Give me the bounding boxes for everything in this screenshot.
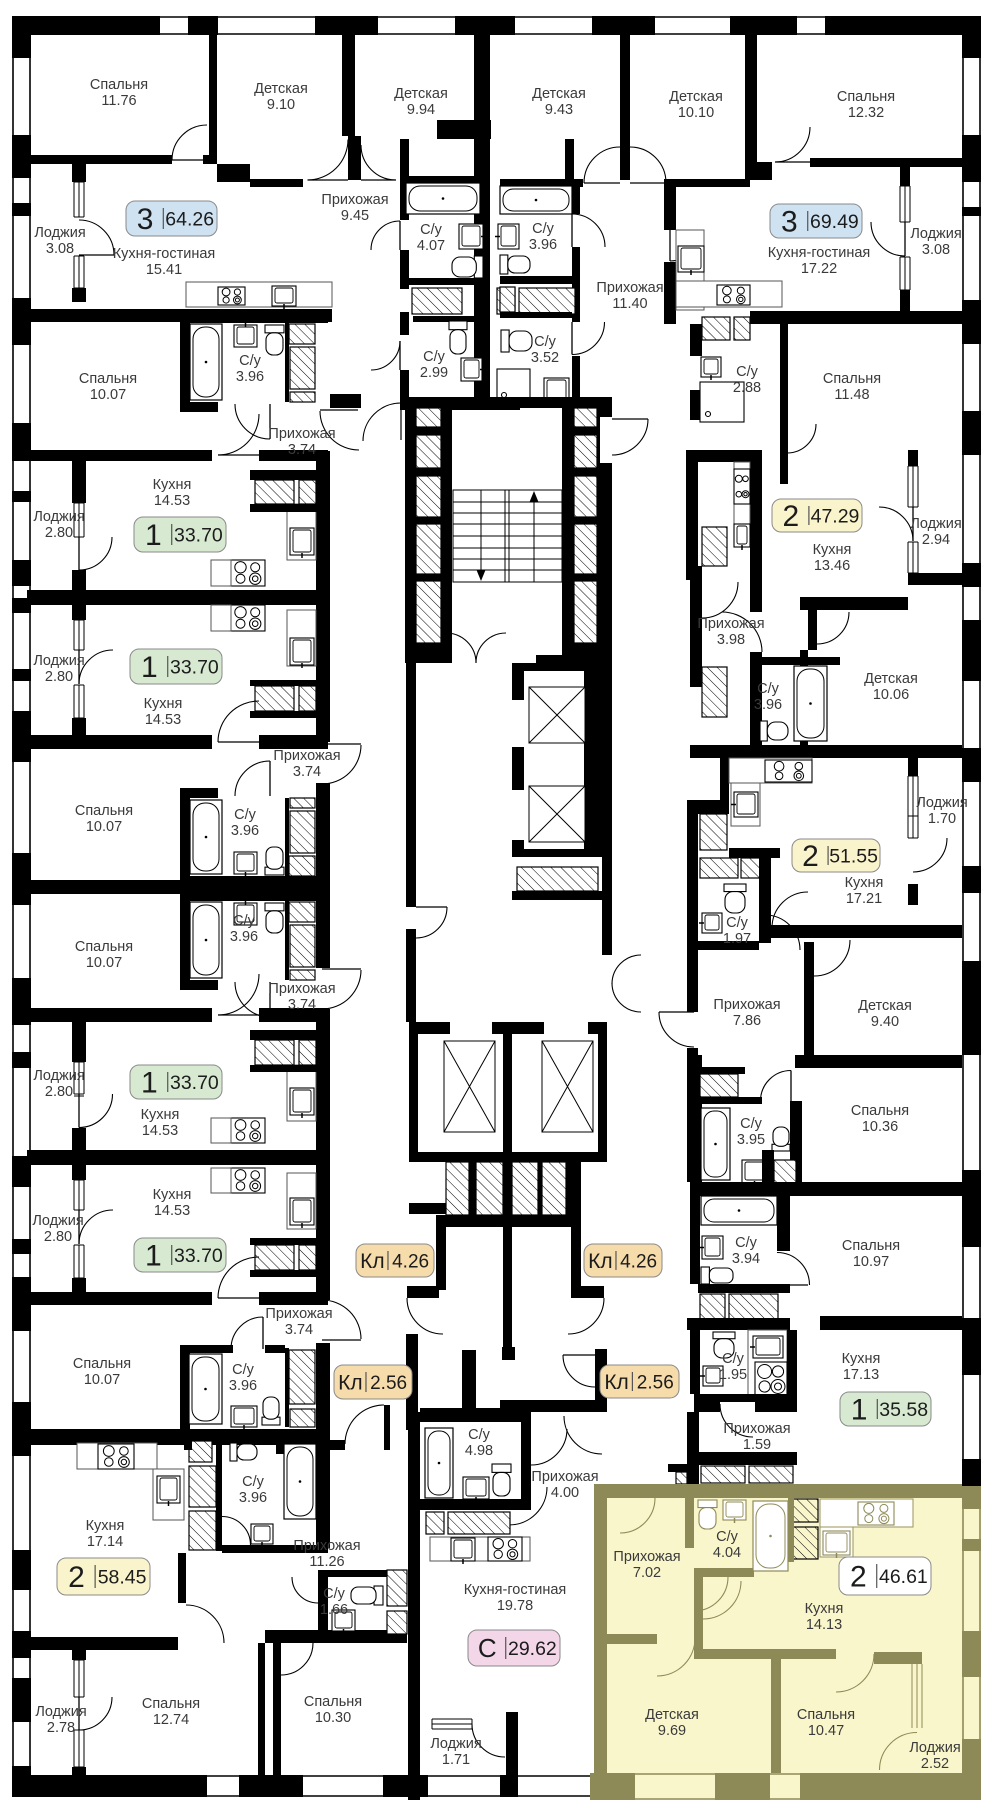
- svg-text:14.53: 14.53: [142, 1123, 178, 1139]
- svg-text:10.07: 10.07: [84, 1372, 120, 1388]
- svg-text:4.26: 4.26: [392, 1251, 429, 1272]
- svg-text:1: 1: [145, 519, 162, 552]
- svg-text:3.08: 3.08: [46, 241, 74, 257]
- svg-text:14.53: 14.53: [154, 1203, 190, 1219]
- svg-text:С/у: С/у: [239, 353, 262, 369]
- svg-text:1: 1: [141, 651, 158, 684]
- svg-text:17.21: 17.21: [846, 891, 882, 907]
- svg-text:3.96: 3.96: [239, 1490, 267, 1506]
- svg-text:Детская: Детская: [858, 998, 912, 1014]
- svg-text:3.96: 3.96: [229, 1378, 257, 1394]
- svg-text:Лоджия: Лоджия: [430, 1736, 481, 1752]
- svg-text:2: 2: [850, 1561, 867, 1594]
- svg-text:Прихожая: Прихожая: [713, 997, 780, 1013]
- svg-text:12.32: 12.32: [848, 105, 884, 121]
- svg-text:Кухня: Кухня: [805, 1601, 844, 1617]
- svg-text:33.70: 33.70: [170, 1072, 219, 1094]
- svg-text:1.59: 1.59: [743, 1437, 771, 1453]
- svg-text:11.76: 11.76: [101, 93, 136, 109]
- svg-text:4.07: 4.07: [417, 238, 445, 254]
- svg-text:10.07: 10.07: [86, 955, 122, 971]
- svg-text:Лоджия: Лоджия: [910, 226, 961, 242]
- svg-text:С/у: С/у: [757, 681, 780, 697]
- svg-text:3.96: 3.96: [230, 929, 258, 945]
- svg-text:3.96: 3.96: [529, 237, 557, 253]
- svg-text:1: 1: [851, 1394, 868, 1427]
- svg-text:1: 1: [145, 1240, 162, 1273]
- svg-text:2.80: 2.80: [45, 1084, 73, 1100]
- svg-text:С/у: С/у: [740, 1116, 763, 1132]
- svg-text:14.53: 14.53: [145, 712, 181, 728]
- svg-text:С/у: С/у: [233, 913, 256, 929]
- svg-text:Спальня: Спальня: [73, 1356, 131, 1372]
- svg-text:Лоджия: Лоджия: [916, 795, 967, 811]
- svg-text:С/у: С/у: [242, 1474, 265, 1490]
- svg-text:С/у: С/у: [735, 1235, 758, 1251]
- svg-text:3.74: 3.74: [288, 997, 316, 1013]
- svg-text:Кухня: Кухня: [153, 1187, 192, 1203]
- svg-text:Прихожая: Прихожая: [697, 616, 764, 632]
- svg-text:3.96: 3.96: [231, 823, 259, 839]
- svg-text:10.07: 10.07: [90, 387, 126, 403]
- svg-text:14.13: 14.13: [806, 1617, 842, 1633]
- svg-text:Кухня: Кухня: [842, 1351, 881, 1367]
- svg-text:С/у: С/у: [736, 364, 759, 380]
- svg-text:29.62: 29.62: [508, 1638, 557, 1660]
- svg-text:17.13: 17.13: [843, 1367, 879, 1383]
- svg-text:10.97: 10.97: [853, 1254, 889, 1270]
- svg-text:69.49: 69.49: [810, 211, 859, 233]
- svg-text:10.10: 10.10: [678, 105, 714, 121]
- svg-text:7.86: 7.86: [733, 1013, 761, 1029]
- svg-text:Прихожая: Прихожая: [293, 1538, 360, 1554]
- svg-text:3.94: 3.94: [732, 1251, 760, 1267]
- svg-text:Кухня: Кухня: [153, 477, 192, 493]
- svg-text:10.36: 10.36: [862, 1119, 898, 1135]
- svg-text:11.40: 11.40: [612, 296, 647, 312]
- svg-text:Прихожая: Прихожая: [265, 1306, 332, 1322]
- svg-text:3.52: 3.52: [531, 350, 559, 366]
- svg-text:1.97: 1.97: [723, 931, 751, 947]
- svg-text:2.80: 2.80: [45, 525, 73, 541]
- svg-text:4.00: 4.00: [551, 1485, 579, 1501]
- svg-text:Прихожая: Прихожая: [321, 192, 388, 208]
- svg-text:12.74: 12.74: [153, 1712, 189, 1728]
- svg-text:33.70: 33.70: [174, 525, 223, 547]
- svg-text:10.47: 10.47: [808, 1723, 844, 1739]
- svg-text:Спальня: Спальня: [75, 803, 133, 819]
- svg-text:9.94: 9.94: [407, 102, 435, 118]
- svg-text:3.98: 3.98: [717, 632, 745, 648]
- svg-text:Кухня-гостиная: Кухня-гостиная: [768, 245, 871, 261]
- svg-text:3.95: 3.95: [737, 1132, 765, 1148]
- svg-text:3.08: 3.08: [922, 242, 950, 258]
- svg-text:2.80: 2.80: [44, 1229, 72, 1245]
- svg-text:33.70: 33.70: [174, 1245, 223, 1267]
- svg-text:С/у: С/у: [722, 1351, 745, 1367]
- svg-text:13.46: 13.46: [814, 558, 850, 574]
- svg-text:1.70: 1.70: [928, 811, 956, 827]
- svg-text:2.78: 2.78: [47, 1720, 75, 1736]
- svg-text:2.52: 2.52: [921, 1756, 949, 1772]
- svg-text:11.26: 11.26: [309, 1554, 344, 1570]
- svg-text:Кл: Кл: [360, 1250, 385, 1273]
- svg-text:Детская: Детская: [254, 81, 308, 97]
- svg-text:Лоджия: Лоджия: [33, 1068, 84, 1084]
- svg-text:Кухня-гостиная: Кухня-гостиная: [113, 246, 216, 262]
- svg-text:7.02: 7.02: [633, 1565, 661, 1581]
- svg-text:2.94: 2.94: [922, 532, 950, 548]
- svg-text:Лоджия: Лоджия: [909, 1740, 960, 1756]
- svg-text:С/у: С/у: [232, 1362, 255, 1378]
- svg-text:Спальня: Спальня: [842, 1238, 900, 1254]
- svg-text:Прихожая: Прихожая: [268, 981, 335, 997]
- svg-text:1.71: 1.71: [442, 1752, 470, 1768]
- svg-text:Кухня: Кухня: [813, 542, 852, 558]
- svg-text:Лоджия: Лоджия: [33, 509, 84, 525]
- svg-text:С/у: С/у: [423, 349, 446, 365]
- svg-text:Детская: Детская: [669, 89, 723, 105]
- svg-text:Прихожая: Прихожая: [723, 1421, 790, 1437]
- svg-text:46.61: 46.61: [879, 1566, 928, 1588]
- svg-text:17.22: 17.22: [801, 261, 837, 277]
- svg-text:2.80: 2.80: [45, 669, 73, 685]
- svg-text:2.99: 2.99: [420, 365, 448, 381]
- svg-text:Прихожая: Прихожая: [268, 426, 335, 442]
- svg-text:Детская: Детская: [532, 86, 586, 102]
- svg-text:Кухня: Кухня: [845, 875, 884, 891]
- svg-text:2.56: 2.56: [637, 1372, 674, 1393]
- svg-text:Спальня: Спальня: [75, 939, 133, 955]
- svg-text:С/у: С/у: [726, 915, 749, 931]
- svg-text:9.43: 9.43: [545, 102, 573, 118]
- svg-text:3: 3: [137, 203, 154, 236]
- svg-text:С/у: С/у: [532, 221, 555, 237]
- svg-text:4.04: 4.04: [713, 1545, 741, 1561]
- svg-text:Кл: Кл: [588, 1250, 613, 1273]
- svg-text:3.74: 3.74: [285, 1322, 313, 1338]
- svg-text:Спальня: Спальня: [90, 77, 148, 93]
- svg-text:Прихожая: Прихожая: [531, 1469, 598, 1485]
- svg-text:33.70: 33.70: [170, 657, 219, 679]
- svg-text:С/у: С/у: [234, 807, 257, 823]
- svg-text:Прихожая: Прихожая: [273, 748, 340, 764]
- svg-text:1: 1: [141, 1067, 158, 1100]
- svg-text:9.10: 9.10: [267, 97, 295, 113]
- svg-text:Детская: Детская: [864, 671, 918, 687]
- svg-text:Лоджия: Лоджия: [910, 516, 961, 532]
- svg-text:9.45: 9.45: [341, 208, 369, 224]
- svg-text:3.96: 3.96: [236, 369, 264, 385]
- svg-text:10.06: 10.06: [873, 687, 909, 703]
- svg-text:58.45: 58.45: [98, 1567, 147, 1589]
- svg-text:Кухня-гостиная: Кухня-гостиная: [464, 1582, 567, 1598]
- svg-text:Кухня: Кухня: [144, 696, 183, 712]
- svg-text:Спальня: Спальня: [79, 371, 137, 387]
- svg-text:С/у: С/у: [420, 222, 443, 238]
- svg-text:2: 2: [783, 500, 800, 533]
- svg-text:64.26: 64.26: [165, 209, 214, 231]
- svg-text:47.29: 47.29: [811, 506, 860, 528]
- svg-text:2: 2: [68, 1561, 85, 1594]
- svg-text:Детская: Детская: [394, 86, 448, 102]
- svg-text:1.95: 1.95: [719, 1367, 747, 1383]
- svg-text:3.74: 3.74: [288, 442, 316, 458]
- svg-text:С/у: С/у: [716, 1529, 739, 1545]
- svg-text:Спальня: Спальня: [837, 89, 895, 105]
- svg-text:Спальня: Спальня: [797, 1707, 855, 1723]
- svg-text:Кухня: Кухня: [141, 1107, 180, 1123]
- svg-text:4.26: 4.26: [620, 1251, 657, 1272]
- svg-text:3.96: 3.96: [754, 697, 782, 713]
- svg-text:Детская: Детская: [645, 1707, 699, 1723]
- svg-text:10.07: 10.07: [86, 819, 122, 835]
- svg-text:Спальня: Спальня: [304, 1694, 362, 1710]
- svg-text:35.58: 35.58: [879, 1399, 928, 1421]
- svg-text:3.74: 3.74: [293, 764, 321, 780]
- svg-text:9.40: 9.40: [871, 1014, 899, 1030]
- svg-text:11.48: 11.48: [834, 387, 869, 403]
- svg-text:Лоджия: Лоджия: [34, 225, 85, 241]
- svg-text:14.53: 14.53: [154, 493, 190, 509]
- svg-text:19.78: 19.78: [497, 1598, 533, 1614]
- svg-text:2.56: 2.56: [370, 1373, 407, 1394]
- svg-text:2.88: 2.88: [733, 380, 761, 396]
- svg-text:С/у: С/у: [468, 1427, 491, 1443]
- svg-text:9.69: 9.69: [658, 1723, 686, 1739]
- svg-text:Спальня: Спальня: [142, 1696, 200, 1712]
- svg-text:Лоджия: Лоджия: [33, 653, 84, 669]
- svg-text:1.66: 1.66: [320, 1602, 348, 1618]
- svg-text:Лоджия: Лоджия: [32, 1213, 83, 1229]
- svg-text:4.98: 4.98: [465, 1443, 493, 1459]
- svg-text:51.55: 51.55: [829, 846, 878, 868]
- svg-text:2: 2: [802, 840, 819, 873]
- svg-text:Спальня: Спальня: [823, 371, 881, 387]
- svg-text:10.30: 10.30: [315, 1710, 351, 1726]
- svg-text:С: С: [478, 1633, 497, 1663]
- svg-text:Кл: Кл: [604, 1371, 629, 1394]
- svg-text:С/у: С/у: [534, 334, 557, 350]
- svg-text:3: 3: [781, 206, 798, 239]
- svg-text:15.41: 15.41: [146, 262, 182, 278]
- svg-text:17.14: 17.14: [87, 1534, 123, 1550]
- svg-text:Лоджия: Лоджия: [35, 1704, 86, 1720]
- svg-text:Кухня: Кухня: [86, 1518, 125, 1534]
- svg-text:Спальня: Спальня: [851, 1103, 909, 1119]
- svg-text:Прихожая: Прихожая: [596, 280, 663, 296]
- svg-text:С/у: С/у: [323, 1586, 346, 1602]
- svg-text:Кл: Кл: [338, 1371, 363, 1394]
- svg-text:Прихожая: Прихожая: [613, 1549, 680, 1565]
